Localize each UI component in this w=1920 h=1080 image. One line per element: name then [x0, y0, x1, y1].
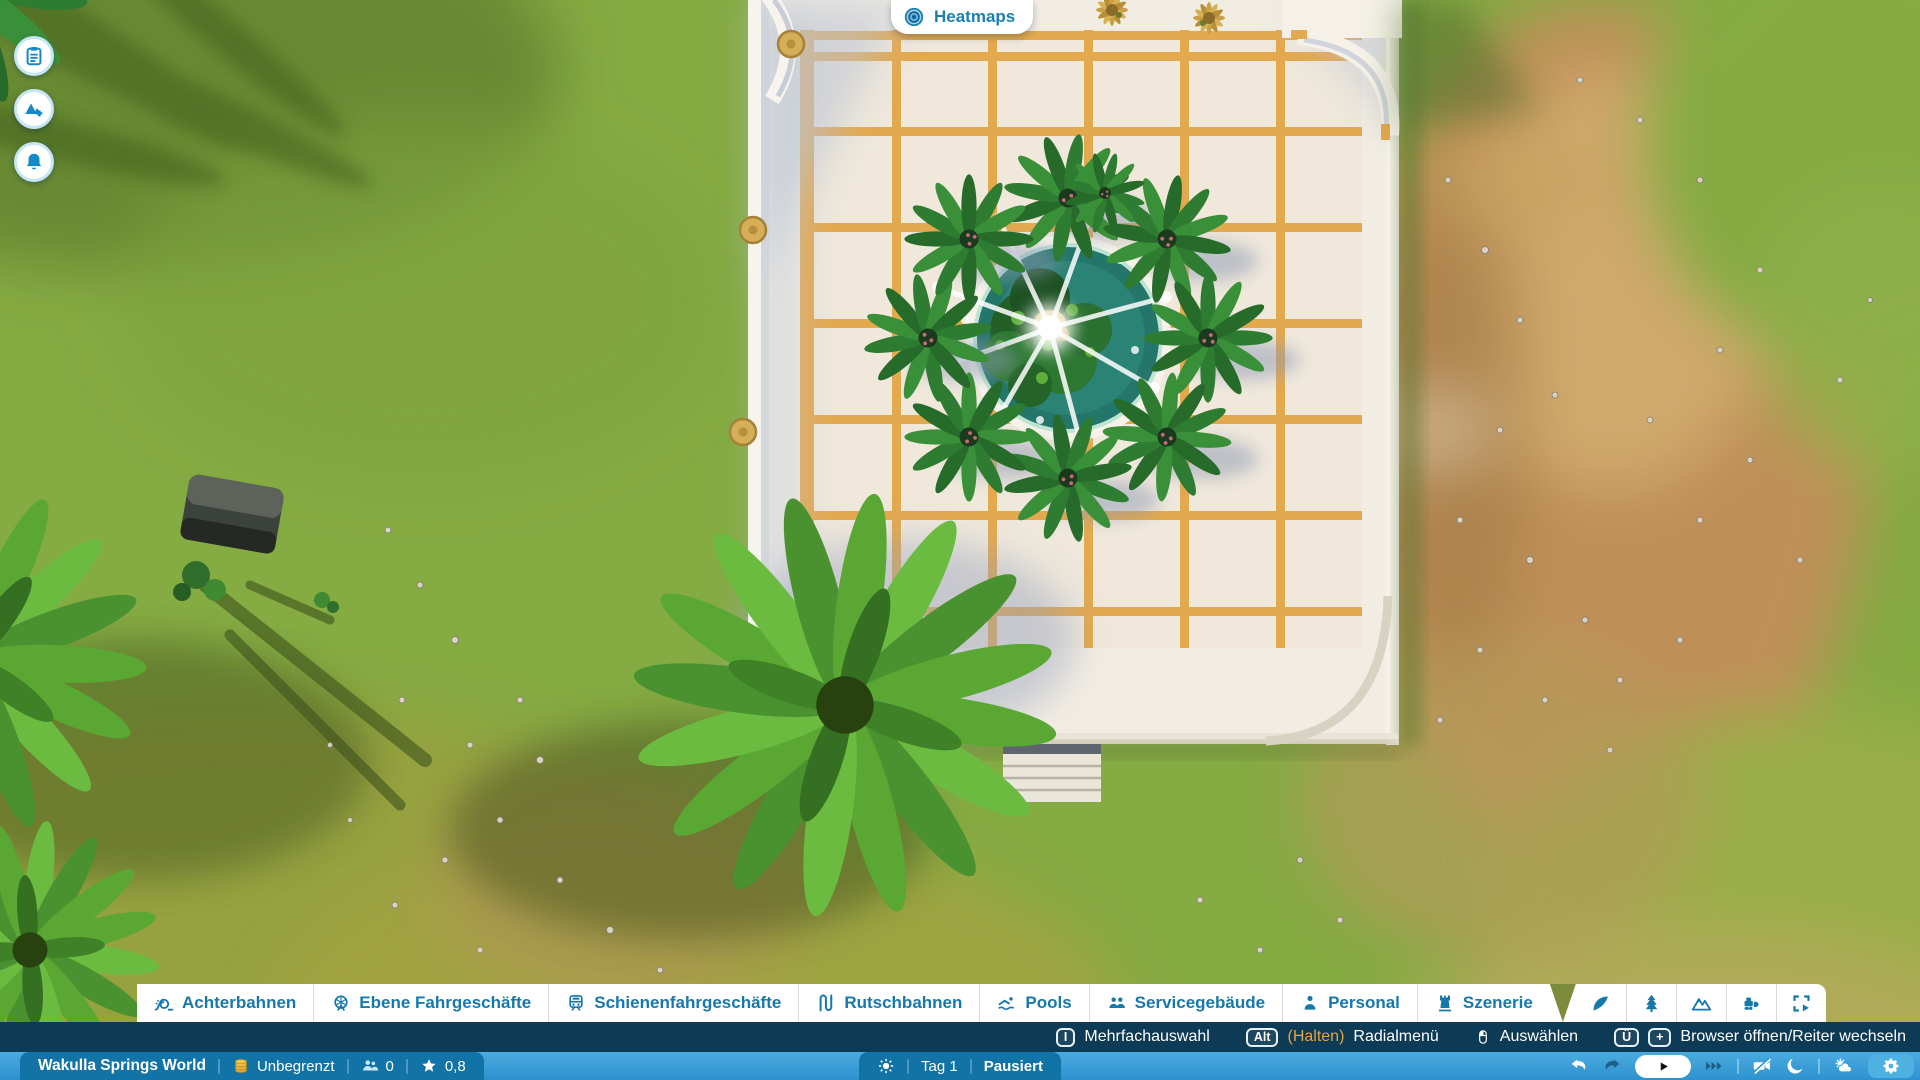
top-left-buttons — [14, 36, 54, 182]
key-badge: + — [1648, 1028, 1671, 1047]
tab-personal[interactable]: Personal — [1282, 984, 1417, 1022]
bulldozer-tool-button[interactable] — [1726, 984, 1776, 1022]
mountain-add-button[interactable] — [14, 89, 54, 129]
hint-label: Browser öffnen/Reiter wechseln — [1680, 1028, 1906, 1046]
gear-icon — [1882, 1057, 1900, 1075]
rating-stat[interactable]: 0,8 — [420, 1057, 466, 1075]
coaster-icon — [154, 993, 174, 1013]
coins-icon — [232, 1057, 250, 1075]
weather-icon — [1833, 1056, 1853, 1076]
park-name: Wakulla Springs World — [38, 1057, 206, 1075]
tree-tool-button[interactable] — [1626, 984, 1676, 1022]
flume-icon — [1590, 993, 1611, 1014]
ferris-icon — [331, 993, 351, 1013]
settings-button[interactable] — [1868, 1054, 1914, 1078]
tab-label: Achterbahnen — [182, 993, 296, 1013]
rating-value: 0,8 — [445, 1058, 466, 1075]
hint-modifier: (Halten) — [1287, 1028, 1344, 1046]
tab-pools[interactable]: Pools — [979, 984, 1088, 1022]
tab-rutschbahnen[interactable]: Rutschbahnen — [798, 984, 979, 1022]
statusbar: Wakulla Springs World Unbegrenzt 0 — [0, 1052, 1920, 1080]
slide-icon — [816, 993, 836, 1013]
tab-label: Personal — [1328, 993, 1400, 1013]
park-info-panel: Wakulla Springs World Unbegrenzt 0 — [20, 1052, 484, 1080]
play-icon — [1657, 1060, 1670, 1073]
hint-auswählen: Auswählen — [1475, 1027, 1578, 1047]
divider — [218, 1059, 220, 1074]
weather-button[interactable] — [1833, 1056, 1853, 1076]
castle-icon — [1435, 993, 1455, 1013]
clipboard-button[interactable] — [14, 36, 54, 76]
pause-state-label: Pausiert — [984, 1058, 1043, 1075]
tab-ebene-fahrgeschäfte[interactable]: Ebene Fahrgeschäfte — [313, 984, 548, 1022]
camera-mode-button[interactable] — [1752, 1056, 1772, 1076]
mountain-add-icon — [23, 98, 45, 120]
hint-mehrfachauswahl: IMehrfachauswahl — [1056, 1028, 1210, 1047]
hint-label: Radialmenü — [1353, 1028, 1438, 1046]
tab-label: Pools — [1025, 993, 1071, 1013]
guests-stat[interactable]: 0 — [361, 1057, 394, 1075]
sun-icon — [877, 1057, 895, 1075]
bulldozer-icon — [1741, 993, 1762, 1014]
tree-icon — [1641, 993, 1662, 1014]
tool-buttons — [1576, 984, 1826, 1022]
fast-forward-button[interactable] — [1704, 1056, 1724, 1076]
day-label: Tag 1 — [921, 1058, 958, 1075]
playback-controls — [1569, 1052, 1920, 1080]
hintbar: IMehrfachauswahlAlt(Halten)RadialmenüAus… — [0, 1022, 1920, 1052]
star-icon — [420, 1057, 438, 1075]
play-button[interactable] — [1635, 1055, 1691, 1078]
clipboard-icon — [23, 45, 45, 67]
guests-icon — [361, 1057, 379, 1075]
key-badge: Ü — [1614, 1028, 1639, 1047]
tab-label: Rutschbahnen — [844, 993, 962, 1013]
guests-value: 0 — [386, 1058, 394, 1075]
divider — [406, 1059, 408, 1074]
tab-label: Szenerie — [1463, 993, 1533, 1013]
tab-servicegebäude[interactable]: Servicegebäude — [1089, 984, 1282, 1022]
hint-radialmenü: Alt(Halten)Radialmenü — [1246, 1028, 1439, 1047]
divider — [347, 1059, 349, 1074]
tab-label: Ebene Fahrgeschäfte — [359, 993, 531, 1013]
camera-off-icon — [1752, 1056, 1772, 1076]
people-icon — [1107, 993, 1127, 1013]
expand-icon — [1791, 993, 1812, 1014]
moon-icon — [1785, 1056, 1805, 1076]
divider — [1737, 1059, 1739, 1074]
tab-achterbahnen[interactable]: Achterbahnen — [137, 984, 313, 1022]
train-icon — [566, 993, 586, 1013]
redo-icon — [1602, 1056, 1622, 1076]
key-badge: I — [1056, 1028, 1075, 1047]
hint-browser-öffnen-reiter-wechseln: Ü+Browser öffnen/Reiter wechseln — [1614, 1028, 1906, 1047]
divider — [907, 1059, 909, 1074]
day-night-button[interactable] — [1785, 1056, 1805, 1076]
hint-label: Auswählen — [1500, 1028, 1578, 1046]
flume-tool-button[interactable] — [1576, 984, 1626, 1022]
tab-szenerie[interactable]: Szenerie — [1417, 984, 1550, 1022]
redo-button[interactable] — [1602, 1056, 1622, 1076]
fast-forward-icon — [1704, 1056, 1724, 1076]
staff-icon — [1300, 993, 1320, 1013]
key-badge: Alt — [1246, 1028, 1279, 1047]
game-viewport[interactable] — [0, 0, 1920, 1080]
time-panel: Tag 1 Pausiert — [859, 1052, 1061, 1080]
undo-icon — [1569, 1056, 1589, 1076]
undo-button[interactable] — [1569, 1056, 1589, 1076]
build-toolbar: AchterbahnenEbene FahrgeschäfteSchienenf… — [137, 984, 1826, 1022]
tab-label: Servicegebäude — [1135, 993, 1265, 1013]
heatmap-icon — [903, 6, 925, 28]
divider — [970, 1059, 972, 1074]
bell-button[interactable] — [14, 142, 54, 182]
bell-icon — [23, 151, 45, 173]
money-stat[interactable]: Unbegrenzt — [232, 1057, 335, 1075]
heatmaps-button[interactable]: Heatmaps — [891, 0, 1033, 34]
heatmaps-label: Heatmaps — [934, 7, 1015, 27]
tab-schienenfahrgeschäfte[interactable]: Schienenfahrgeschäfte — [548, 984, 798, 1022]
hint-label: Mehrfachauswahl — [1084, 1028, 1209, 1046]
tab-label: Schienenfahrgeschäfte — [594, 993, 781, 1013]
money-value: Unbegrenzt — [257, 1058, 335, 1075]
mountain-icon — [1691, 993, 1712, 1014]
swimmer-icon — [997, 993, 1017, 1013]
toolbar-notch — [1550, 984, 1576, 1022]
mouse-icon — [1475, 1027, 1491, 1047]
divider — [1818, 1059, 1820, 1074]
tab-list: AchterbahnenEbene FahrgeschäfteSchienenf… — [137, 984, 1550, 1022]
expand-tool-button[interactable] — [1776, 984, 1826, 1022]
mountain-tool-button[interactable] — [1676, 984, 1726, 1022]
